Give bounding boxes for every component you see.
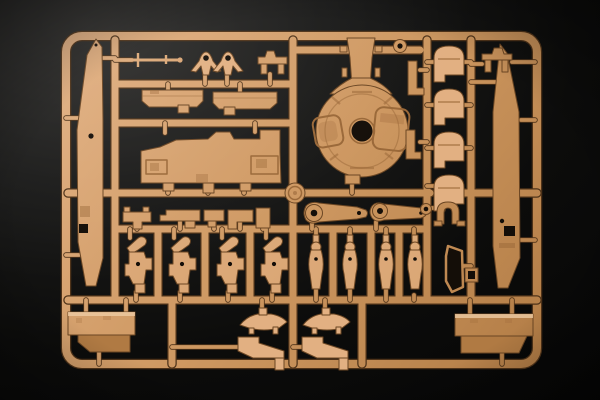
- photo-canvas: [0, 0, 600, 400]
- sprue-photo: [0, 0, 600, 400]
- lighting-vignette: [0, 0, 600, 400]
